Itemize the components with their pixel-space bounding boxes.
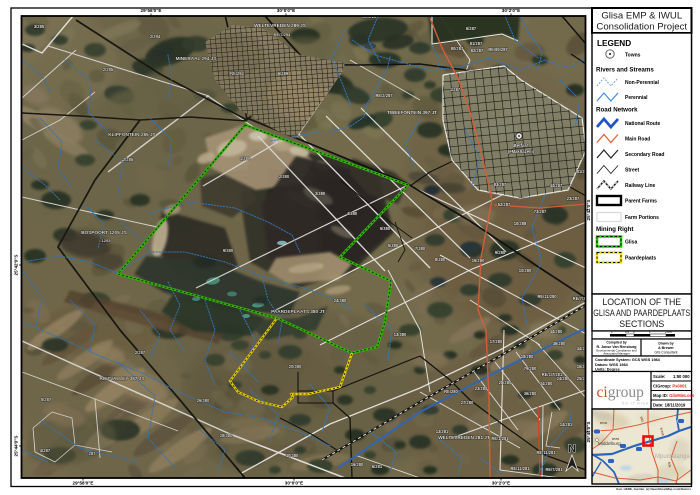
svg-text:Map ID: GlisMinLocs: Map ID: GlisMinLocs <box>653 393 695 398</box>
svg-text:GLISA AND PAARDEPLAATS: GLISA AND PAARDEPLAATS <box>593 308 690 318</box>
svg-text:R540: R540 <box>600 421 608 425</box>
svg-text:LEGEND: LEGEND <box>597 39 631 48</box>
svg-text:Railway Line: Railway Line <box>625 183 656 189</box>
svg-text:30°2'0"E: 30°2'0"E <box>502 8 520 13</box>
svg-text:A Brewer: A Brewer <box>658 346 674 350</box>
svg-text:Paardeplaats: Paardeplaats <box>625 256 656 262</box>
svg-text:Coordinate System: GCS WGS 198: Coordinate System: GCS WGS 1984 <box>595 358 661 362</box>
svg-text:Mining Right: Mining Right <box>596 226 633 233</box>
svg-text:Perennial: Perennial <box>625 95 648 101</box>
svg-text:SECTIONS: SECTIONS <box>619 319 664 329</box>
svg-text:CIGroup: Ps0001: CIGroup: Ps0001 <box>653 384 687 389</box>
svg-text:Associated Manager: Associated Manager <box>603 351 629 355</box>
svg-text:Rivers and Streams: Rivers and Streams <box>596 67 654 74</box>
svg-text:Esri, HERE, Garmin, (c) OpenSt: Esri, HERE, Garmin, (c) OpenStreetMap co… <box>616 487 691 491</box>
svg-text:1:50 000: 1:50 000 <box>673 374 690 379</box>
svg-text:Towns: Towns <box>625 53 641 59</box>
svg-text:Street: Street <box>625 168 640 174</box>
svg-text:30°0'0"E: 30°0'0"E <box>277 8 295 13</box>
svg-text:25°42'0"S: 25°42'0"S <box>586 200 591 221</box>
svg-text:Consolidation Project: Consolidation Project <box>596 22 687 33</box>
svg-text:cigroup: cigroup <box>597 384 645 401</box>
svg-text:Main Road: Main Road <box>625 137 650 143</box>
svg-text:Drawn by: Drawn by <box>658 342 673 346</box>
svg-text:30°2'0"E: 30°2'0"E <box>492 481 510 486</box>
svg-text:Scale:: Scale: <box>653 374 665 379</box>
svg-text:LOCATION OF THE: LOCATION OF THE <box>602 297 681 307</box>
svg-text:0.5: 0.5 <box>625 330 630 334</box>
svg-text:Non-Perennial: Non-Perennial <box>625 80 660 86</box>
svg-text:25°44'0"S: 25°44'0"S <box>586 422 591 443</box>
svg-text:Date: 18/11/2019: Date: 18/11/2019 <box>653 403 686 408</box>
svg-text:Middelburg: Middelburg <box>598 441 621 446</box>
svg-text:Farm Portions: Farm Portions <box>625 215 659 221</box>
svg-text:30°0'0"E: 30°0'0"E <box>285 481 303 486</box>
svg-text:25°44'0"S: 25°44'0"S <box>14 436 19 457</box>
svg-text:25°42'0"S: 25°42'0"S <box>14 255 19 276</box>
svg-text:Parent Farms: Parent Farms <box>625 199 657 205</box>
svg-text:National Route: National Route <box>625 121 660 127</box>
svg-text:Secondary Road: Secondary Road <box>625 152 664 158</box>
svg-text:Datum: WGS 1984: Datum: WGS 1984 <box>595 363 629 367</box>
svg-text:DO IT RIGHT: DO IT RIGHT <box>622 402 652 406</box>
svg-text:2 km: 2 km <box>665 330 672 334</box>
svg-text:29°58'0"E: 29°58'0"E <box>141 8 162 13</box>
svg-text:Glisa EMP & IWUL: Glisa EMP & IWUL <box>601 11 683 22</box>
svg-text:Road Network: Road Network <box>596 107 638 114</box>
svg-text:GIS Consultant: GIS Consultant <box>655 350 678 354</box>
svg-text:29°58'0"E: 29°58'0"E <box>73 481 94 486</box>
svg-text:Glisa: Glisa <box>625 240 637 246</box>
svg-text:Mpumalanga: Mpumalanga <box>655 454 690 460</box>
